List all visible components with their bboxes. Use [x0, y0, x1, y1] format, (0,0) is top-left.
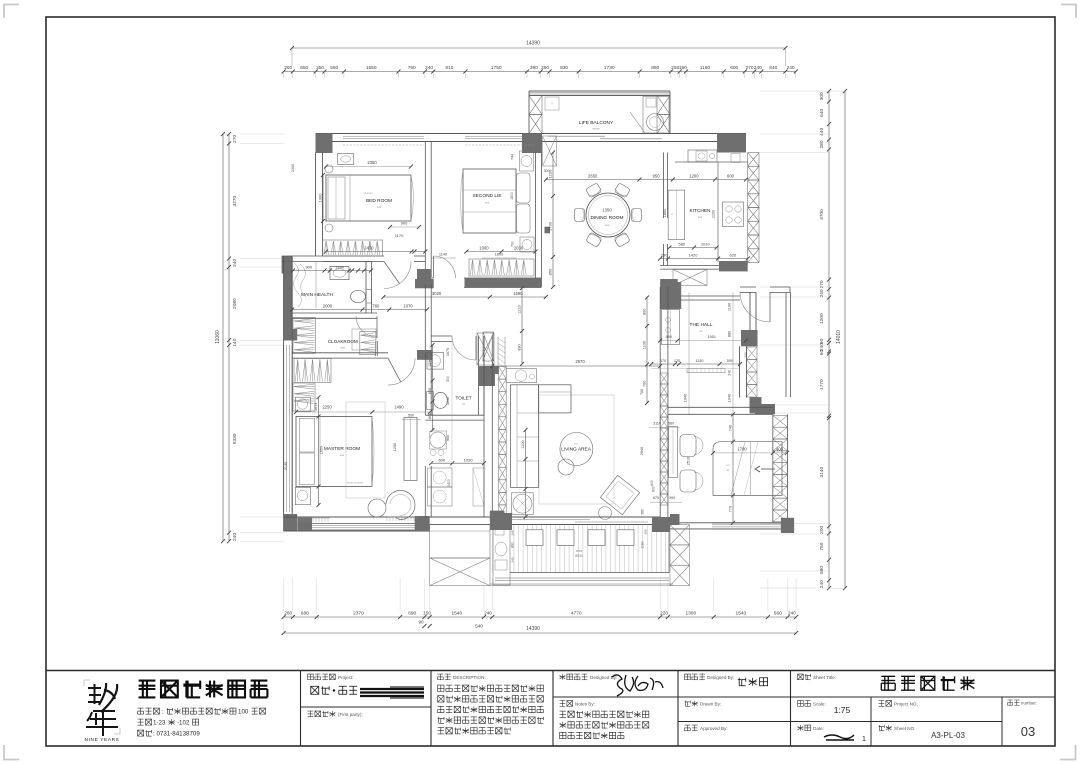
svg-text:Date:: Date:: [813, 726, 824, 731]
svg-text:180: 180: [679, 65, 687, 71]
svg-text:xx: xx: [462, 402, 466, 406]
svg-text:100: 100: [238, 709, 249, 716]
svg-text:240: 240: [425, 65, 433, 71]
svg-text:290: 290: [661, 253, 668, 258]
svg-text:xxx: xxx: [605, 223, 610, 227]
svg-text:760: 760: [372, 304, 380, 309]
svg-text:1010: 1010: [428, 359, 432, 367]
svg-text:400: 400: [776, 447, 784, 452]
svg-text:2350: 2350: [367, 160, 377, 165]
svg-text:1800: 1800: [663, 209, 667, 217]
svg-text:(First party):: (First party):: [338, 712, 363, 717]
svg-text:1200: 1200: [393, 443, 397, 451]
svg-text:1040: 1040: [728, 394, 732, 402]
svg-text:800: 800: [643, 309, 647, 315]
svg-text:600: 600: [727, 174, 735, 179]
svg-text:1073: 1073: [314, 403, 318, 411]
svg-text:number:: number:: [1021, 701, 1037, 706]
svg-text:1390: 1390: [335, 265, 345, 270]
svg-text:700: 700: [640, 389, 644, 395]
svg-text:240: 240: [728, 370, 732, 376]
svg-text:DINING ROOM: DINING ROOM: [590, 215, 623, 221]
svg-text:240: 240: [511, 557, 515, 562]
svg-text:500: 500: [408, 414, 414, 418]
svg-text:xx-xxxx: xx-xxxx: [363, 191, 373, 195]
svg-text:890: 890: [511, 542, 515, 548]
svg-text:250: 250: [316, 65, 324, 71]
svg-text:3700: 3700: [819, 209, 825, 220]
svg-text:-102: -102: [177, 720, 190, 727]
svg-text:2360: 2360: [291, 164, 295, 172]
svg-text:Sheet NO.: Sheet NO.: [894, 726, 915, 731]
svg-text:xxx: xxx: [698, 215, 703, 219]
svg-text:LIVING AREA: LIVING AREA: [561, 447, 592, 453]
svg-text:600: 600: [428, 388, 432, 394]
svg-text:CLOAKROOM: CLOAKROOM: [328, 339, 358, 344]
svg-text:240: 240: [511, 530, 515, 535]
svg-text:670: 670: [653, 496, 659, 500]
svg-text:Project:: Project:: [338, 675, 354, 680]
svg-text:1420: 1420: [689, 253, 699, 258]
svg-text:440: 440: [819, 127, 825, 135]
svg-text:580: 580: [668, 422, 674, 426]
svg-text:380: 380: [641, 509, 645, 515]
svg-text:14390: 14390: [526, 41, 540, 47]
svg-text:1100: 1100: [643, 341, 647, 349]
svg-text:1770: 1770: [819, 379, 825, 390]
svg-text:1000: 1000: [479, 246, 489, 251]
svg-text:380: 380: [644, 529, 648, 534]
svg-text:xxxxx: xxxxx: [592, 127, 600, 131]
svg-text:xxx: xxx: [485, 201, 490, 205]
svg-text:240: 240: [819, 580, 825, 588]
svg-text:300: 300: [446, 376, 450, 382]
svg-text:120: 120: [674, 359, 680, 363]
svg-text:90: 90: [418, 620, 424, 625]
svg-text:600: 600: [650, 480, 654, 486]
svg-text:2370: 2370: [353, 610, 364, 616]
svg-text:BED ROOM: BED ROOM: [366, 198, 392, 204]
svg-text:590: 590: [727, 359, 733, 363]
svg-text:xxx: xxx: [340, 453, 345, 457]
svg-text:1340: 1340: [446, 397, 450, 405]
svg-text:580: 580: [678, 242, 685, 247]
svg-text:240: 240: [484, 610, 492, 616]
svg-text:MASTER ROOM: MASTER ROOM: [324, 446, 360, 452]
svg-text:KITCHEN: KITCHEN: [689, 208, 711, 214]
svg-text:590: 590: [666, 335, 672, 339]
svg-text:14390: 14390: [526, 626, 540, 632]
svg-text:390: 390: [530, 65, 538, 71]
svg-text:910: 910: [445, 65, 453, 71]
svg-text:1010: 1010: [701, 242, 711, 247]
svg-text:1070: 1070: [403, 304, 413, 309]
svg-text:1750: 1750: [491, 65, 502, 71]
svg-text:1300: 1300: [317, 193, 322, 203]
svg-text:670: 670: [660, 359, 666, 363]
svg-text:750: 750: [819, 542, 825, 550]
svg-text:2430: 2430: [364, 246, 374, 251]
svg-text:3140: 3140: [819, 466, 825, 477]
svg-text:744: 744: [511, 154, 515, 160]
svg-text:Drawn By:: Drawn By:: [700, 702, 721, 707]
svg-text:890: 890: [651, 65, 659, 71]
svg-text:DESCRIPTION:: DESCRIPTION:: [453, 675, 486, 680]
svg-text:1210: 1210: [518, 305, 522, 313]
svg-text:540: 540: [475, 624, 483, 629]
svg-text:840: 840: [769, 65, 777, 71]
svg-text:270: 270: [232, 134, 238, 142]
svg-text:: 0731-84138709: : 0731-84138709: [153, 731, 200, 738]
svg-text:xxx: xxx: [377, 205, 382, 209]
svg-text:14010: 14010: [836, 330, 842, 344]
svg-text:680: 680: [301, 610, 309, 616]
svg-text:280: 280: [819, 140, 825, 148]
svg-text:03: 03: [1021, 724, 1035, 739]
svg-text:3110: 3110: [653, 422, 661, 426]
svg-text:8930: 8930: [575, 554, 583, 558]
svg-text:xxxxx xxxxxxx: xxxxx xxxxxxx: [347, 482, 364, 485]
svg-text:1-23: 1-23: [153, 720, 166, 727]
svg-text:2030: 2030: [514, 246, 524, 251]
svg-text:2510: 2510: [687, 457, 691, 465]
svg-text:MAIN HEALTH: MAIN HEALTH: [301, 292, 333, 298]
svg-text:1540: 1540: [451, 610, 462, 616]
svg-text:620: 620: [730, 253, 737, 258]
svg-text:1130: 1130: [695, 359, 703, 363]
svg-text:Scale:: Scale:: [813, 702, 826, 707]
svg-text:770: 770: [729, 506, 733, 512]
svg-text:2940: 2940: [640, 447, 644, 455]
svg-text:1:75: 1:75: [834, 705, 851, 715]
svg-text:1160: 1160: [700, 65, 711, 71]
svg-text:4770: 4770: [571, 610, 582, 616]
svg-text:750: 750: [408, 65, 416, 71]
svg-text:TOILET: TOILET: [456, 396, 472, 401]
svg-text:1350: 1350: [602, 208, 612, 213]
svg-text:1180: 1180: [641, 541, 645, 548]
svg-text:240: 240: [232, 258, 238, 266]
svg-text:1140: 1140: [439, 253, 447, 257]
svg-text:220: 220: [660, 610, 668, 616]
svg-text:2080: 2080: [232, 298, 238, 309]
svg-text:3270: 3270: [232, 195, 238, 206]
svg-text:2250: 2250: [322, 405, 332, 410]
svg-text:290: 290: [744, 352, 748, 358]
svg-text:1670: 1670: [446, 348, 450, 356]
svg-text:240: 240: [754, 65, 762, 71]
svg-text:250: 250: [541, 65, 549, 71]
svg-text:2000: 2000: [323, 304, 333, 309]
svg-text:11060: 11060: [215, 330, 221, 344]
svg-text:880: 880: [728, 331, 732, 337]
svg-text:1200: 1200: [689, 174, 699, 179]
svg-text:1300: 1300: [685, 610, 696, 616]
svg-text:1951: 1951: [708, 335, 716, 339]
svg-text:3020: 3020: [432, 291, 442, 296]
svg-text:240: 240: [232, 533, 238, 541]
svg-text:3130: 3130: [284, 462, 288, 470]
svg-text:LIFE BALCONY: LIFE BALCONY: [579, 120, 614, 126]
svg-text:2970: 2970: [575, 359, 585, 364]
svg-text:1730: 1730: [604, 65, 615, 71]
svg-text:1650: 1650: [320, 446, 324, 454]
svg-text:Notes By:: Notes By:: [575, 702, 595, 707]
svg-text:600: 600: [652, 486, 656, 492]
svg-text:1100: 1100: [728, 303, 732, 311]
svg-text:300: 300: [544, 169, 550, 173]
svg-text:1200: 1200: [819, 313, 825, 324]
svg-text:640: 640: [819, 108, 825, 116]
svg-text:x x: x x: [574, 442, 578, 446]
svg-text:650: 650: [300, 65, 308, 71]
svg-text:240: 240: [819, 289, 825, 297]
svg-text:580: 580: [819, 566, 825, 574]
svg-text:1800: 1800: [510, 192, 514, 200]
svg-text:690: 690: [408, 610, 416, 616]
svg-text:1040: 1040: [684, 394, 688, 402]
svg-text:200: 200: [819, 525, 825, 533]
svg-text:1800: 1800: [495, 253, 503, 257]
svg-text:900: 900: [401, 221, 408, 226]
svg-text:390: 390: [669, 496, 675, 500]
svg-text:600: 600: [438, 457, 445, 462]
svg-text:600: 600: [730, 65, 738, 71]
svg-text:270: 270: [745, 65, 753, 71]
svg-text:560: 560: [774, 610, 782, 616]
svg-text:1540: 1540: [735, 610, 746, 616]
svg-text:740: 740: [729, 425, 733, 431]
svg-text:830: 830: [560, 65, 568, 71]
svg-text:2290: 2290: [712, 210, 716, 218]
svg-text:1550: 1550: [366, 65, 377, 71]
svg-text:240: 240: [787, 65, 795, 71]
svg-text:730: 730: [511, 241, 515, 247]
svg-text:SECOND LIE: SECOND LIE: [472, 193, 501, 199]
svg-text:900: 900: [305, 265, 312, 270]
svg-text:xxxx: xxxx: [576, 549, 583, 553]
svg-text:A3-PL-03: A3-PL-03: [931, 731, 965, 740]
svg-text:1590: 1590: [513, 291, 523, 296]
svg-text:800: 800: [428, 413, 432, 419]
svg-text:1030: 1030: [464, 457, 474, 462]
svg-text:700: 700: [643, 381, 647, 387]
svg-text:60: 60: [819, 349, 825, 355]
svg-text:1170: 1170: [395, 233, 404, 238]
svg-text:Project NO.: Project NO.: [894, 702, 918, 707]
svg-text:1: 1: [862, 736, 866, 743]
svg-text:THE HALL: THE HALL: [690, 322, 713, 328]
svg-text:260: 260: [284, 610, 292, 616]
svg-text:270: 270: [819, 280, 825, 288]
svg-text:850: 850: [547, 268, 552, 275]
svg-text:950: 950: [653, 174, 661, 179]
svg-text:140: 140: [232, 338, 238, 346]
svg-text:550: 550: [330, 65, 338, 71]
svg-text:Designed By:: Designed By:: [707, 675, 734, 680]
svg-text:5330: 5330: [232, 433, 238, 444]
svg-text:300: 300: [819, 92, 825, 100]
svg-text:1490: 1490: [394, 405, 404, 410]
svg-text:150: 150: [423, 610, 431, 616]
svg-text:260: 260: [284, 65, 292, 71]
svg-text:xx: xx: [700, 329, 704, 333]
svg-text:890: 890: [518, 344, 522, 350]
svg-text:2650: 2650: [588, 174, 598, 179]
svg-text:1100: 1100: [521, 440, 525, 448]
svg-text:Approved By:: Approved By:: [700, 726, 728, 731]
svg-text:1730: 1730: [547, 221, 552, 231]
svg-text:1400: 1400: [447, 479, 451, 487]
svg-text:Sheet Title:: Sheet Title:: [813, 675, 836, 680]
svg-text:240: 240: [788, 610, 796, 616]
svg-text:xxx: xxx: [341, 346, 346, 350]
svg-text:NINE YEARS: NINE YEARS: [85, 737, 120, 743]
svg-text:1700: 1700: [737, 447, 747, 452]
